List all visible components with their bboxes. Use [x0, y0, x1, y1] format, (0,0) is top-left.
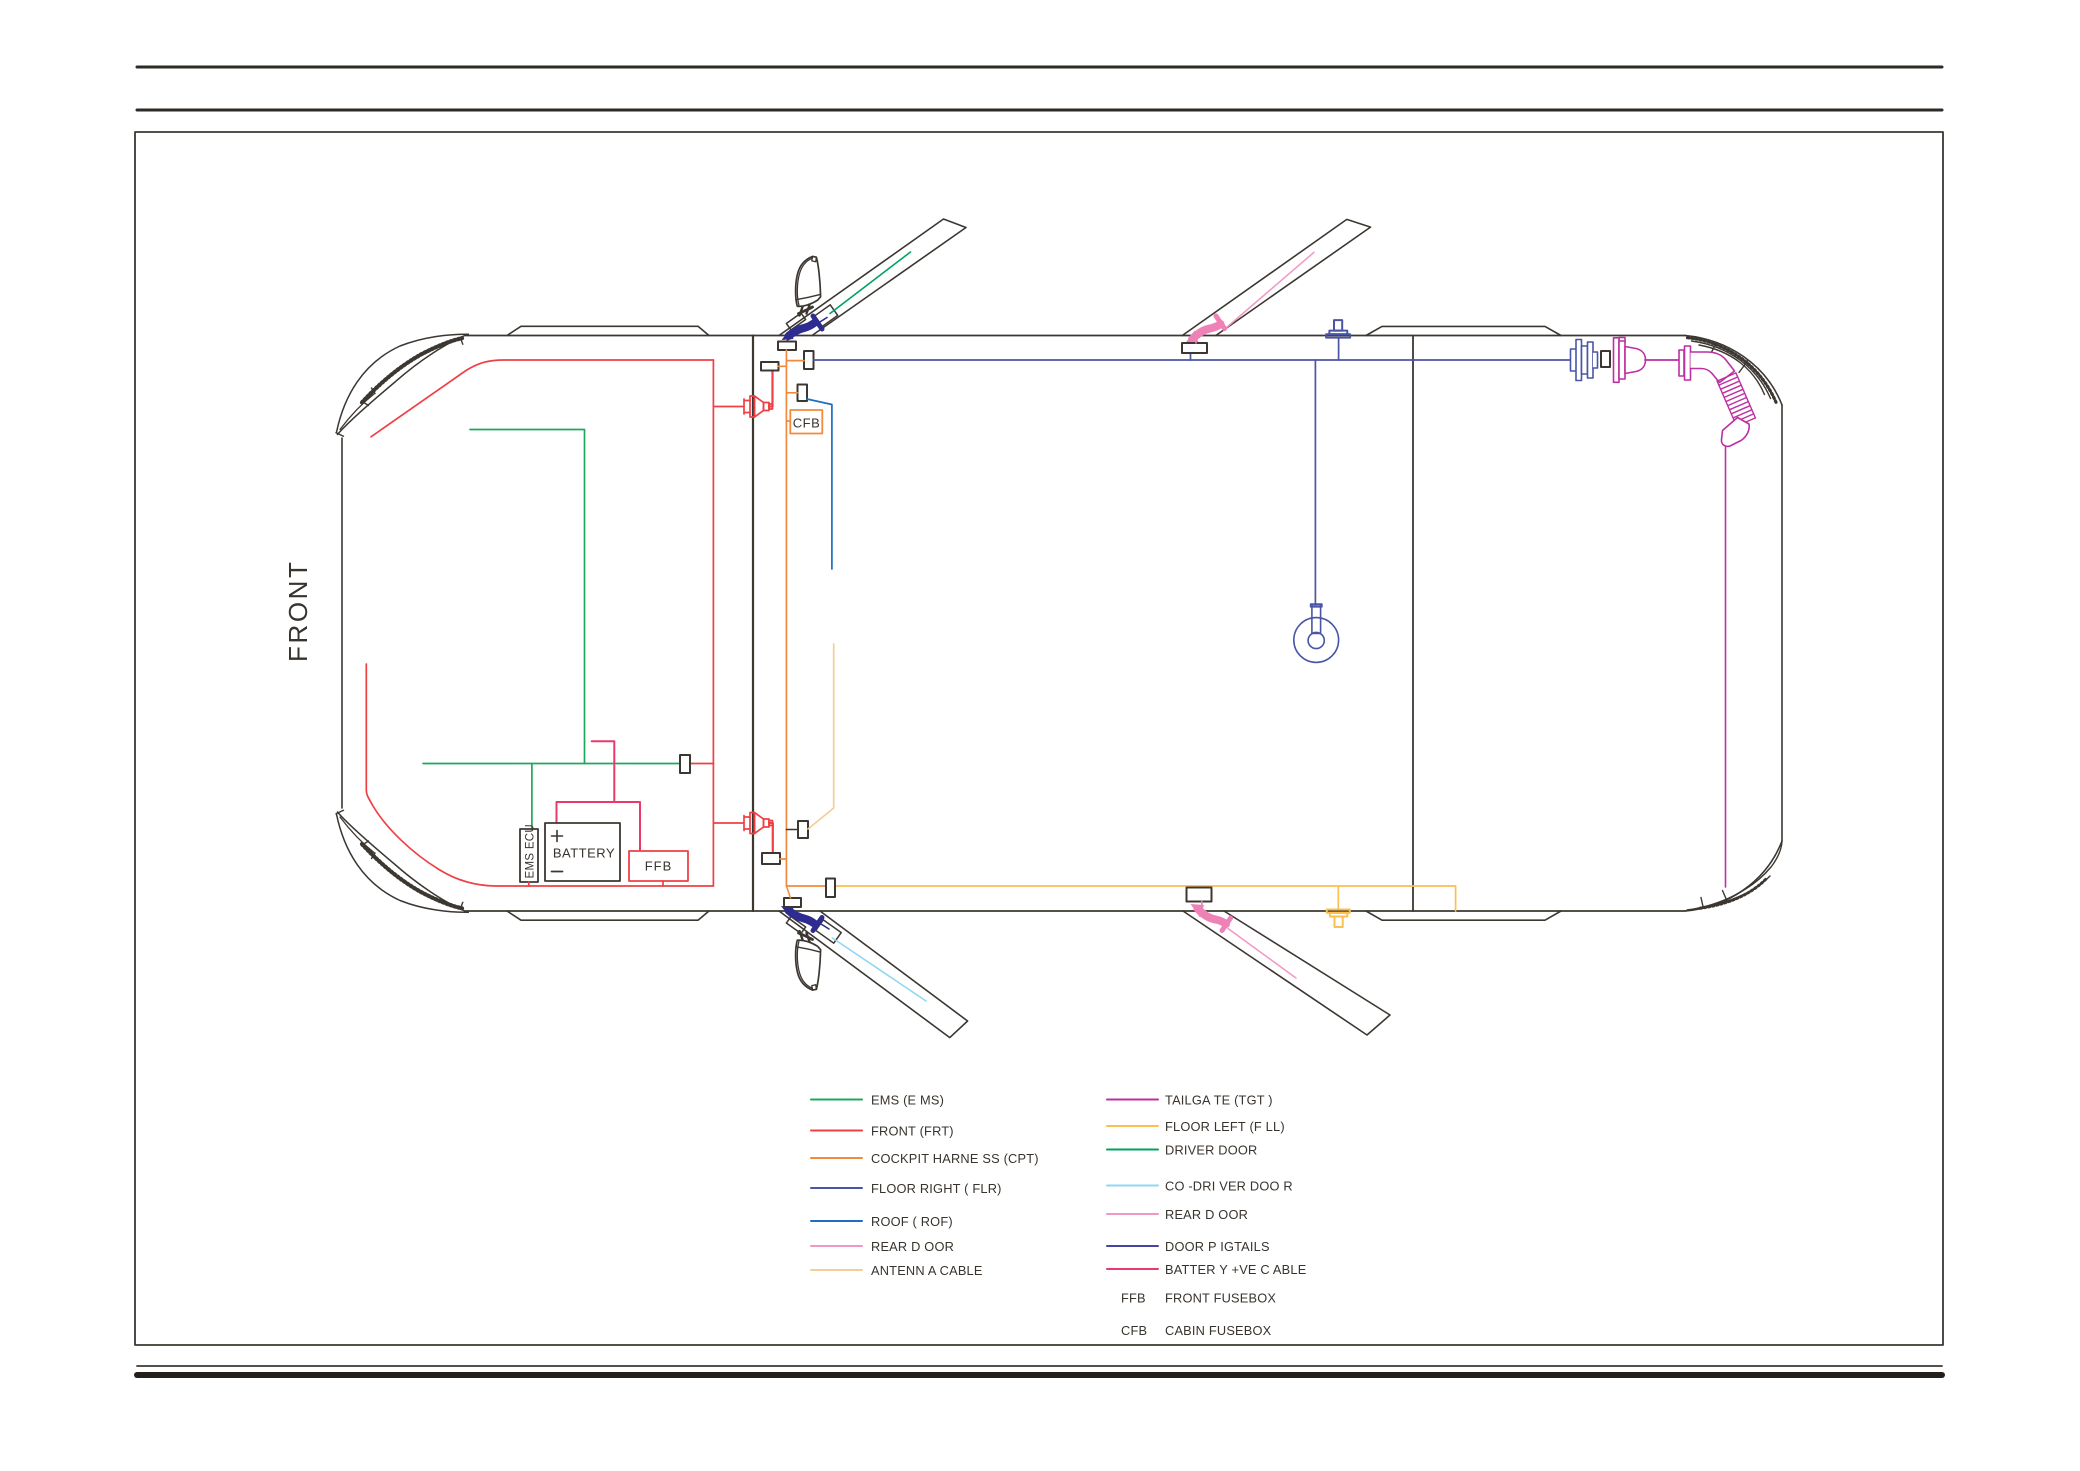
svg-text:REAR D OOR: REAR D OOR — [1165, 1207, 1248, 1222]
svg-text:ANTENN A CABLE: ANTENN A CABLE — [871, 1263, 983, 1278]
svg-text:FRONT FUSEBOX: FRONT FUSEBOX — [1165, 1291, 1276, 1306]
svg-text:BATTERY: BATTERY — [553, 846, 615, 861]
svg-text:FLOOR RIGHT ( FLR): FLOOR RIGHT ( FLR) — [871, 1181, 1002, 1196]
svg-text:EMS ECU: EMS ECU — [525, 824, 537, 879]
svg-text:FRONT: FRONT — [283, 559, 313, 662]
svg-text:ROOF ( ROF): ROOF ( ROF) — [871, 1214, 953, 1229]
svg-text:FLOOR LEFT (F LL): FLOOR LEFT (F LL) — [1165, 1119, 1285, 1134]
svg-text:DRIVER DOOR: DRIVER DOOR — [1165, 1143, 1258, 1158]
svg-text:EMS (E MS): EMS (E MS) — [871, 1093, 944, 1108]
svg-text:DOOR P IGTAILS: DOOR P IGTAILS — [1165, 1239, 1270, 1254]
svg-text:CABIN FUSEBOX: CABIN FUSEBOX — [1165, 1323, 1272, 1338]
svg-text:REAR D OOR: REAR D OOR — [871, 1239, 954, 1254]
svg-text:CFB: CFB — [1121, 1323, 1147, 1338]
svg-text:FRONT (FRT): FRONT (FRT) — [871, 1124, 954, 1139]
svg-text:TAILGA TE (TGT ): TAILGA TE (TGT ) — [1165, 1093, 1273, 1108]
svg-text:BATTER Y +VE C ABLE: BATTER Y +VE C ABLE — [1165, 1262, 1306, 1277]
svg-text:FFB: FFB — [645, 859, 673, 874]
svg-text:CO -DRI VER DOO R: CO -DRI VER DOO R — [1165, 1179, 1293, 1194]
svg-text:COCKPIT HARNE SS (CPT): COCKPIT HARNE SS (CPT) — [871, 1151, 1039, 1166]
svg-text:FFB: FFB — [1121, 1291, 1146, 1306]
svg-text:CFB: CFB — [793, 416, 821, 431]
